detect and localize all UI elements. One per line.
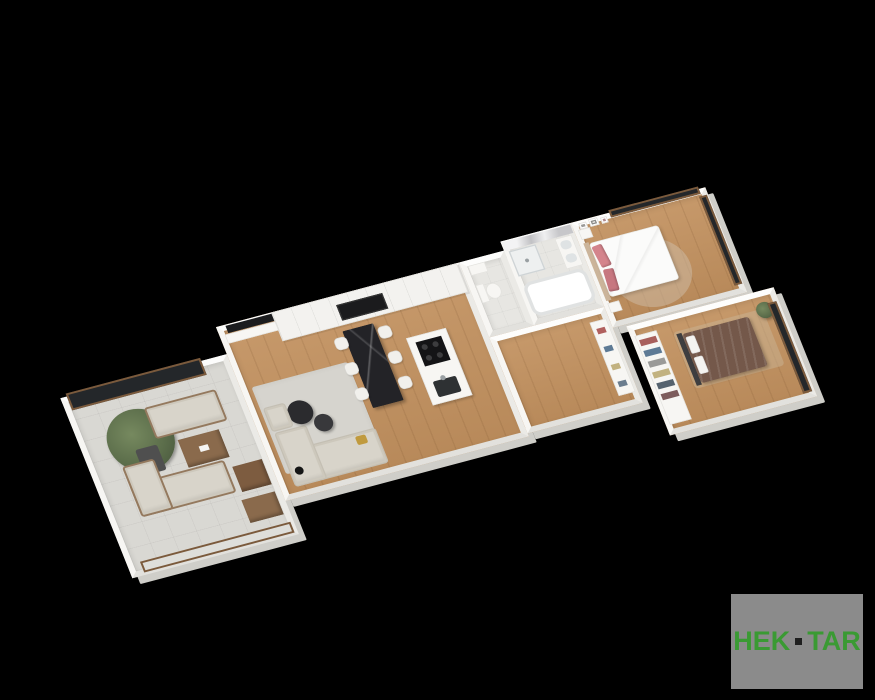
hektar-logo: HEKTAR <box>731 594 863 689</box>
logo-text-tar: TAR <box>807 626 861 656</box>
apartment-plan <box>30 156 822 592</box>
render-canvas: HEKTAR <box>0 0 875 700</box>
logo-separator-dot <box>795 638 802 645</box>
logo-text: HEKTAR <box>733 628 861 655</box>
logo-text-hek: HEK <box>733 626 790 656</box>
